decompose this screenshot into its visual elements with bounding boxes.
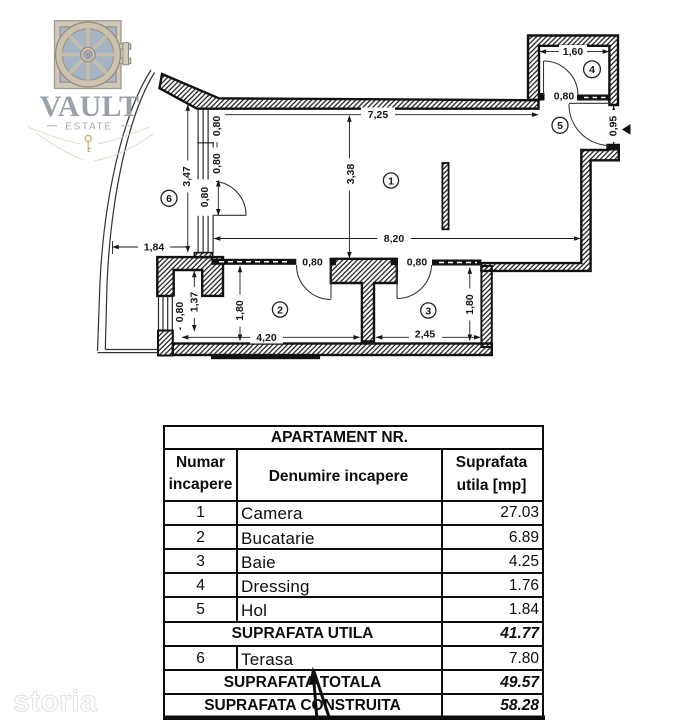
svg-text:0,80: 0,80 xyxy=(407,257,428,269)
svg-text:6: 6 xyxy=(166,193,172,205)
svg-text:0,80: 0,80 xyxy=(211,116,223,137)
svg-text:0,80: 0,80 xyxy=(211,153,223,174)
svg-text:0,80: 0,80 xyxy=(302,257,323,269)
svg-text:VAULT: VAULT xyxy=(40,90,139,123)
svg-text:1,80: 1,80 xyxy=(464,294,476,315)
svg-text:2,45: 2,45 xyxy=(415,329,436,341)
svg-text:4,20: 4,20 xyxy=(256,332,277,344)
svg-text:1: 1 xyxy=(388,175,394,187)
svg-text:3: 3 xyxy=(425,305,431,317)
svg-text:ESTATE: ESTATE xyxy=(65,122,113,133)
svg-text:1,84: 1,84 xyxy=(144,242,165,254)
svg-text:7,25: 7,25 xyxy=(368,109,389,121)
svg-text:5: 5 xyxy=(557,120,563,132)
svg-text:1,60: 1,60 xyxy=(563,46,584,58)
svg-text:0,80: 0,80 xyxy=(554,91,575,103)
svg-text:0,80: 0,80 xyxy=(174,302,186,323)
svg-text:0,80: 0,80 xyxy=(199,187,211,208)
svg-text:1,37: 1,37 xyxy=(189,292,201,313)
svg-text:storia: storia xyxy=(13,685,97,718)
svg-text:3,38: 3,38 xyxy=(345,164,357,185)
svg-text:1,80: 1,80 xyxy=(234,300,246,321)
svg-text:0,95: 0,95 xyxy=(608,116,620,137)
svg-text:3,47: 3,47 xyxy=(181,166,193,187)
svg-text:2: 2 xyxy=(277,304,283,316)
svg-text:8,20: 8,20 xyxy=(384,233,405,245)
svg-text:4: 4 xyxy=(589,64,595,76)
